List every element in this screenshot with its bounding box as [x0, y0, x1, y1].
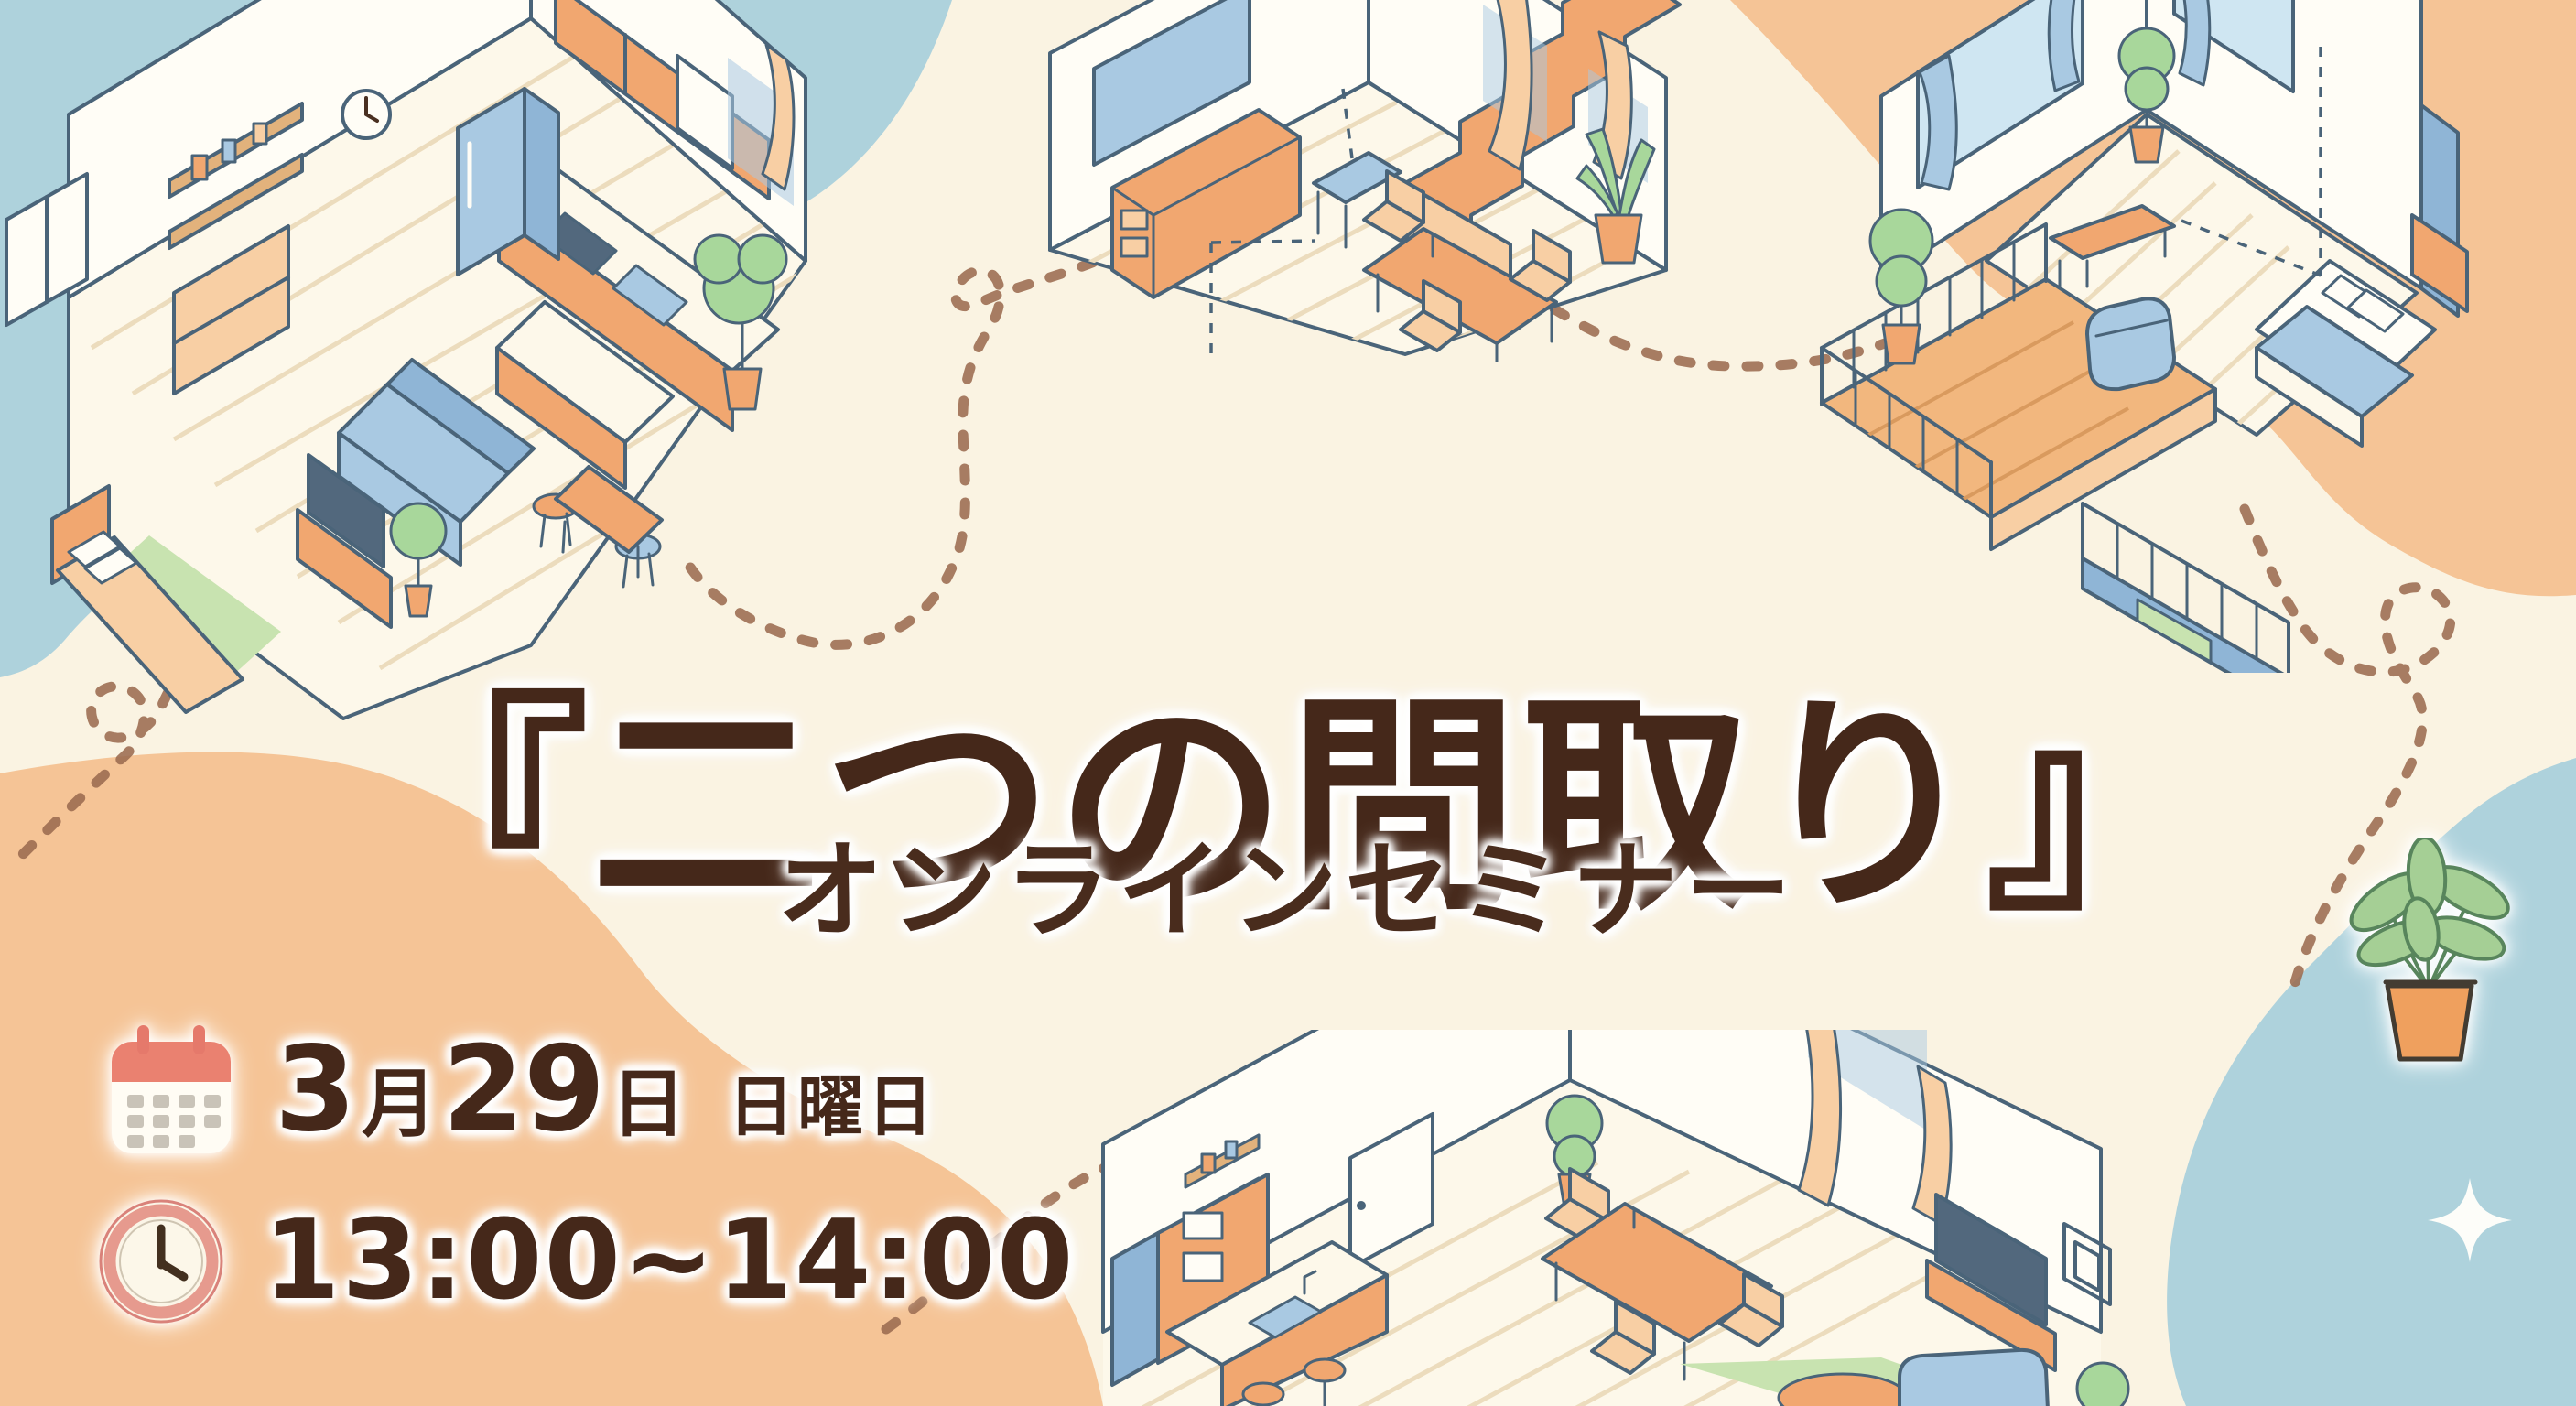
date-day-suffix: 日 [611, 1067, 686, 1142]
clock-icon [97, 1197, 225, 1325]
time-row: 13:00~14:00 [97, 1197, 1076, 1325]
sparkle-icon [2426, 1176, 2514, 1264]
date-month-suffix: 月 [362, 1067, 437, 1142]
date-month-number: 3 [275, 1032, 356, 1149]
event-date: 3 月 29 日 日曜日 [275, 1032, 936, 1149]
event-subtitle: オンラインセミナー [0, 838, 2576, 945]
calendar-icon [103, 1018, 240, 1163]
date-weekday: 日曜日 [728, 1074, 936, 1140]
seminar-banner: 『二つの間取り』 オンラインセミナー 3 月 29 日 日曜日 [0, 0, 2576, 1406]
event-time: 13:00~14:00 [264, 1206, 1076, 1316]
floorplan-illustration-bottom-center [1076, 1030, 2156, 1406]
floorplan-illustration-top-right [1780, 0, 2522, 673]
date-day-number: 29 [442, 1032, 605, 1149]
date-row: 3 月 29 日 日曜日 [103, 1018, 936, 1163]
floorplan-illustration-top-center [984, 0, 1726, 362]
